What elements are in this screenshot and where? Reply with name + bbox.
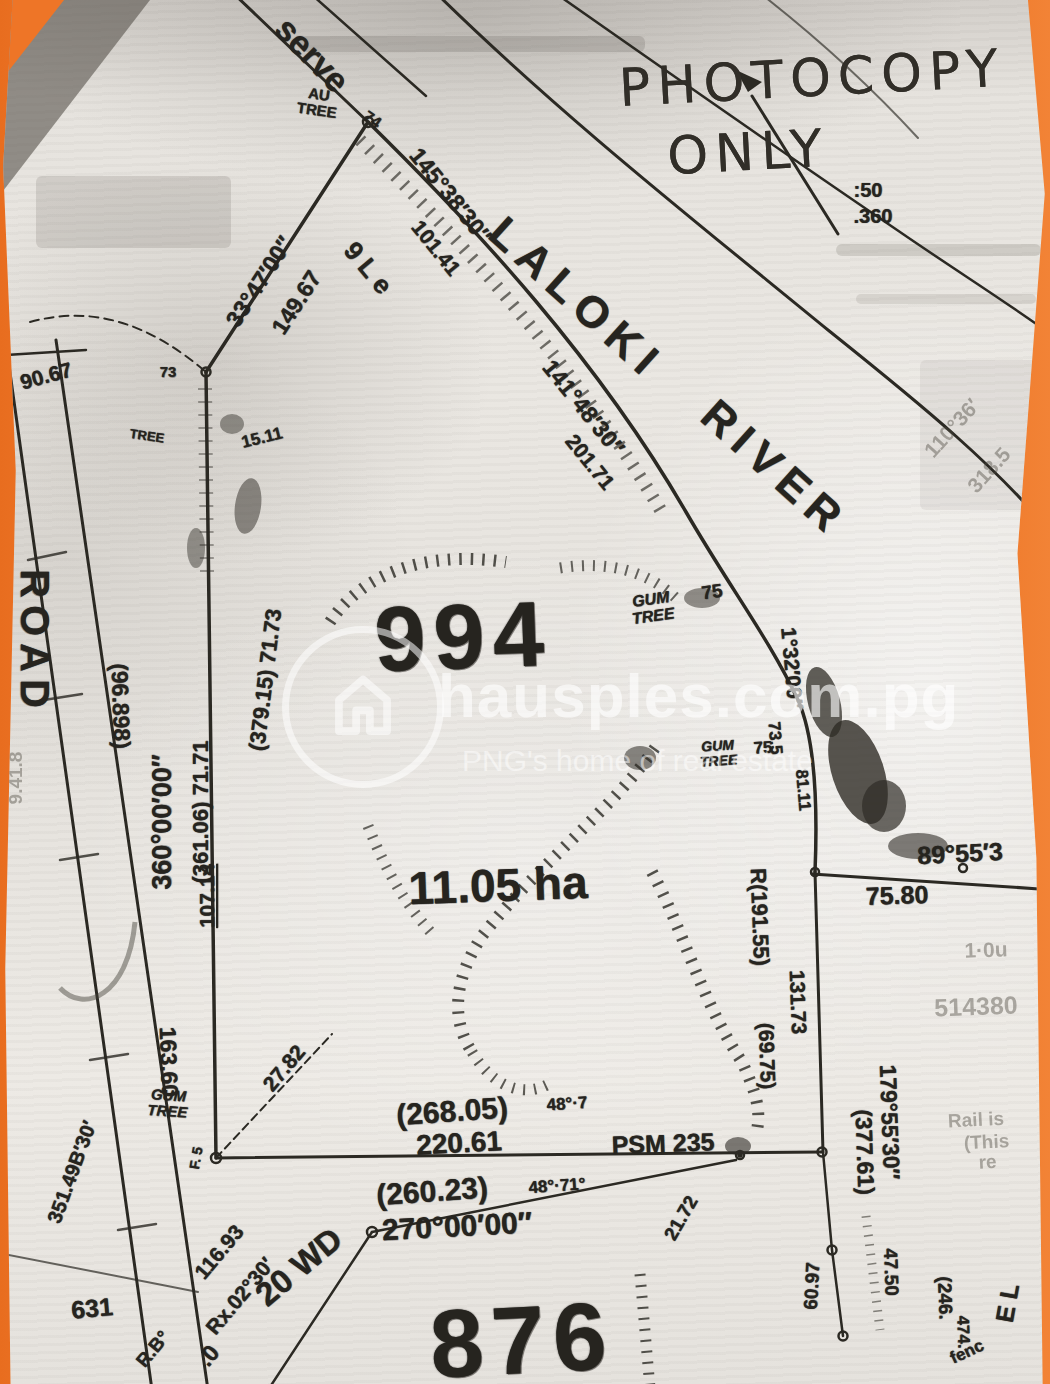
label-area-1105ha: 11.05 ha [408,859,589,913]
label-d-22061: 220.61 [415,1126,502,1160]
label-frag-360: .360 [854,206,893,227]
label-gum-tree-1: GUM TREE [629,589,676,628]
label-east-frag2: 81.11 [792,769,813,812]
label-frag-el: E L [991,1282,1023,1325]
label-d-4750: 47.50 [880,1248,901,1296]
photo-of-survey-plan: PHOTOCOPY ONLY :50 .360 serve AU TREE 74… [0,0,1050,1384]
photocopy-stamp-line2: ONLY [666,121,830,183]
label-r-19155: R(191.55) [746,868,772,967]
label-paren-37761: (377.61) [851,1109,878,1195]
label-faint-rail: Rail is [948,1109,1005,1132]
label-frag-487: 48°·7 [546,1094,588,1114]
label-paren-6975: (69.75) [755,1022,779,1089]
label-frag-941: 9.41.8 [6,752,26,805]
label-d-16360: 163.60 [155,1026,181,1097]
label-lot-876: 876 [427,1285,616,1384]
label-75-a: 75 [700,581,724,604]
label-631: 631 [70,1293,114,1323]
label-d-13173: 131.73 [786,970,810,1035]
label-paren-26023: (260.23) [375,1172,489,1211]
label-d-7580: 75.80 [865,881,928,909]
label-south-bearing: 270°00′00″ [381,1206,533,1245]
label-d-6097: 60.97 [801,1262,823,1311]
label-west-bearing: 360°00′00″ [148,754,176,889]
road-lines [0,316,736,1384]
label-faint-514380: 514380 [934,992,1018,1021]
label-faint-10u: 1·0u [964,938,1008,961]
label-e2-bearing: 179°55′30″ [875,1064,903,1180]
label-road: ROAD [13,569,55,715]
label-se-bearing: 89°55′3 [917,838,1004,868]
label-frag-4871: 48°·71° [528,1175,586,1197]
label-lot-994: 994 [373,586,554,688]
label-paren-246: (246. [934,1276,955,1320]
label-psm-235: PSM 235 [611,1128,715,1158]
label-pt-73: 73 [160,364,177,380]
label-d-10714: 107.14 [196,864,218,928]
pencil-marks [60,922,135,999]
label-gum-tree-2: GUM TREE [698,737,737,769]
label-au-tree: AU TREE [296,84,340,120]
label-frag-colon50: :50 [854,180,883,201]
scanned-survey-plan-paper: PHOTOCOPY ONLY :50 .360 serve AU TREE 74… [0,0,1050,1384]
label-paren-26805: (268.05) [395,1092,509,1131]
label-west-paren: (361.06) 71.71 [190,740,213,883]
label-east-frag1: 73.5 [765,721,785,756]
label-paren-96898: (96.898) [107,663,134,749]
label-faint-this: (This re [955,1131,1020,1174]
